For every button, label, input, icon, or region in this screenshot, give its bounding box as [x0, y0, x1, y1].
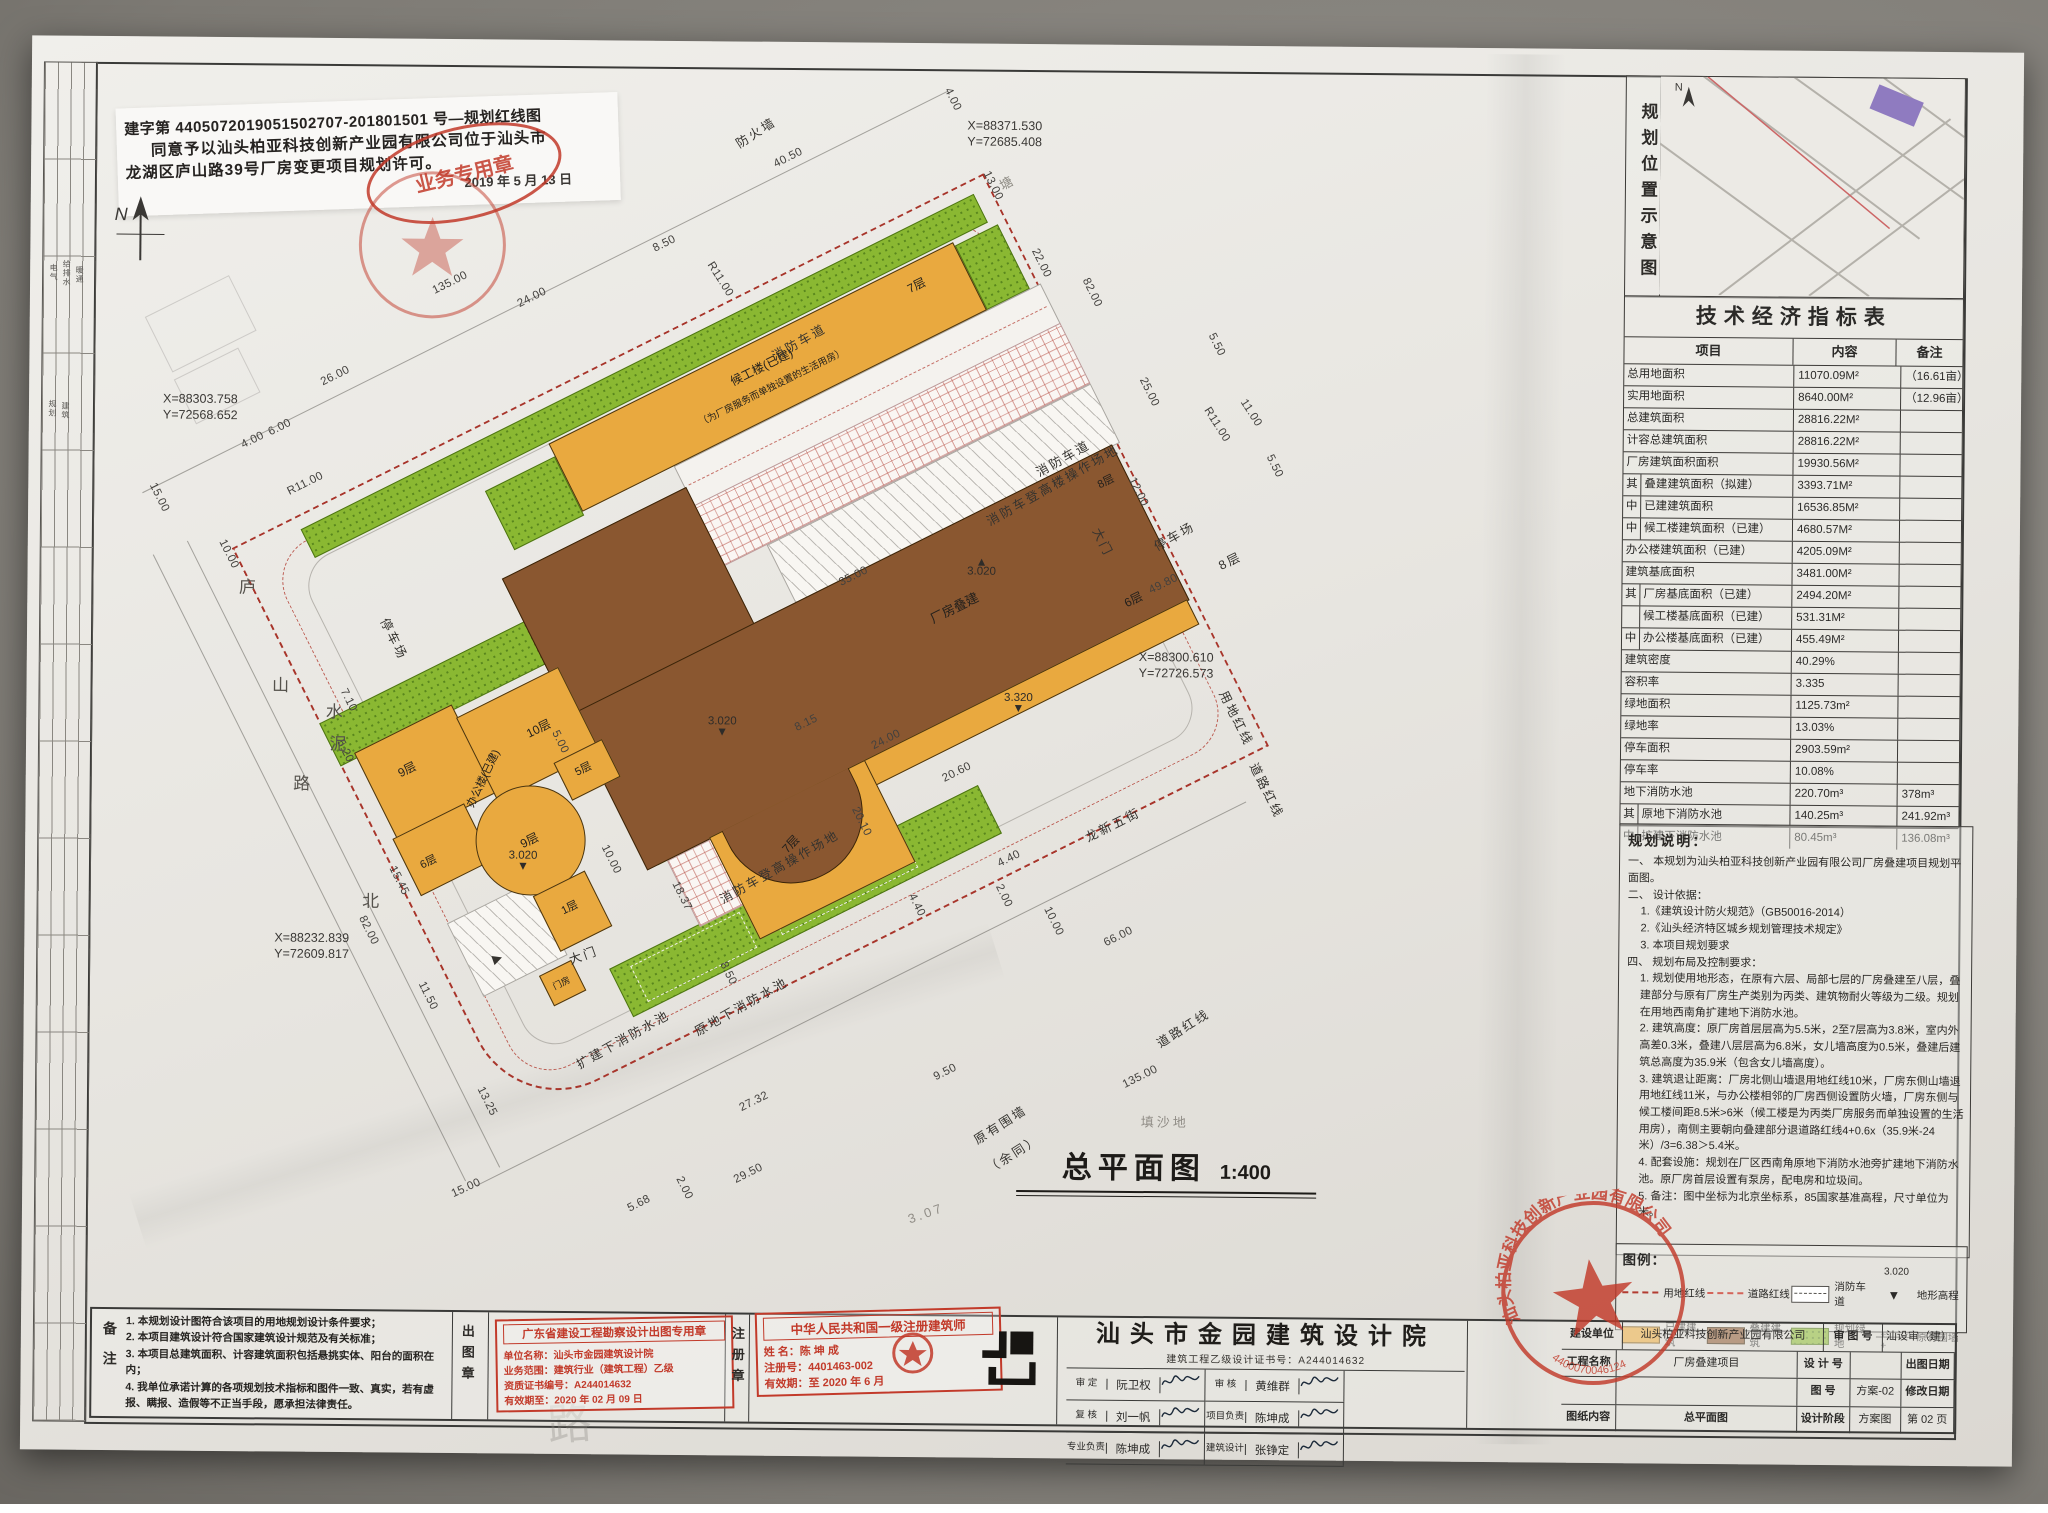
- legend-item: 道路红线: [1707, 1278, 1792, 1309]
- table-row: 建筑密度40.29%: [1622, 649, 1960, 674]
- row-label: 办公楼基底面积（已建）: [1640, 628, 1791, 650]
- divider: [1466, 1321, 1468, 1428]
- table-row: 建筑基底面积3481.00M²: [1622, 561, 1960, 586]
- elevation-triangle-icon: ▼: [509, 862, 538, 870]
- coord-y: Y=72609.817: [274, 946, 349, 963]
- row-group-prefix: 中: [1622, 628, 1640, 649]
- signature-ink: [1299, 1370, 1344, 1401]
- architect-seal-icon: [891, 1331, 935, 1375]
- row-value: 220.70m³: [1790, 784, 1897, 806]
- row-value: 4205.09M²: [1792, 542, 1899, 564]
- row-label: 候工楼基底面积（已建）: [1640, 606, 1791, 628]
- row-label: 停车面积: [1621, 738, 1790, 760]
- chutu-stamp-lines: 单位名称：汕头市金园建筑设计院业务范围：建筑行业（建筑工程）乙级资质证书编号：A…: [503, 1344, 726, 1408]
- row-value: 8640.00M²: [1793, 388, 1900, 410]
- row-value: 455.49M²: [1791, 630, 1898, 652]
- row-note: [1897, 697, 1959, 719]
- shen-value: 汕设审（建）: [1882, 1325, 1955, 1352]
- content-label: 图纸内容: [1561, 1404, 1615, 1431]
- table-row: 其叠建建筑面积（拟建）3393.71M²: [1623, 473, 1961, 498]
- row-note: [1899, 477, 1961, 499]
- coord-y: Y=72568.652: [163, 407, 238, 424]
- row-group-prefix: 中: [1623, 518, 1641, 539]
- signature-ink: [1160, 1433, 1205, 1464]
- row-group-prefix: 中: [1623, 496, 1641, 517]
- table-row: 中办公楼基底面积（已建）455.49M²: [1622, 627, 1960, 652]
- table-row: 其厂房基底面积（已建）2494.20M²: [1622, 583, 1960, 608]
- signature-cell: 建筑设计张铮定: [1205, 1434, 1344, 1467]
- signature-role: 审 定: [1066, 1379, 1107, 1390]
- north-arrow-icon: N: [96, 190, 173, 271]
- plan-label: 庐: [239, 573, 256, 598]
- eco-table-title: 技术经济指标表: [1625, 296, 1963, 340]
- legend-label: 消防车道: [1834, 1279, 1876, 1309]
- signature-name: 阮卫权: [1107, 1376, 1160, 1392]
- row-group-prefix: 其: [1622, 584, 1640, 605]
- elevation-triangle-icon: ▲: [967, 557, 996, 565]
- rev-label: 修改日期: [1900, 1380, 1953, 1407]
- row-label: 实用地面积: [1624, 386, 1793, 408]
- signature-cell: 审 定阮卫权: [1066, 1368, 1205, 1401]
- row-label: 候工楼建筑面积（已建）: [1641, 518, 1792, 540]
- coord-x: X=88300.610: [1139, 649, 1214, 666]
- eco-table-header: 项目 内容 备注: [1624, 337, 1962, 366]
- plan-title-text: 总平面图: [1062, 1142, 1206, 1187]
- zhuce-stamp-title: 中华人民共和国一级注册建筑师: [763, 1312, 994, 1341]
- coordinate-callout: X=88371.530Y=72685.408: [967, 117, 1042, 150]
- row-value: 16536.85M²: [1792, 498, 1899, 520]
- table-row: 中已建建筑面积16536.85M²: [1623, 495, 1961, 520]
- table-row: 绿地面积1125.73m²: [1621, 693, 1959, 718]
- left-strip-label: 暖通: [74, 266, 85, 284]
- plan-label: 山: [272, 671, 289, 696]
- planning-notes-title: 规划说明：: [1628, 830, 1966, 854]
- signature-cell: 审 核黄维群: [1205, 1370, 1344, 1403]
- row-note: [1900, 411, 1962, 433]
- eco-indicator-table: 技术经济指标表 项目 内容 备注 总用地面积11070.09M²（16.61亩）…: [1619, 295, 1964, 828]
- divider: [487, 1312, 489, 1419]
- rev-value: [1953, 1380, 1954, 1407]
- building-label: 7层: [904, 273, 928, 297]
- row-note: [1898, 609, 1960, 631]
- plan-label: 填沙地: [1141, 1112, 1189, 1131]
- building-label: 5层: [572, 758, 594, 780]
- signature-name: 刘一帆: [1107, 1408, 1160, 1424]
- row-value: 4680.57M²: [1792, 520, 1899, 542]
- remarks-side-label: 备注: [99, 1321, 120, 1381]
- header-item: 项目: [1624, 337, 1792, 364]
- note-line: 一、 本规划为汕头柏亚科技创新产业园有限公司厂房叠建项目规划平面图。: [1628, 854, 1966, 890]
- elev-symbol-icon: ▼: [1876, 1287, 1912, 1302]
- table-row: 停车面积2903.59m²: [1621, 737, 1959, 762]
- chutu-stamp: 广东省建设工程勘察设计出图专用章 单位名称：汕头市金园建筑设计院业务范围：建筑行…: [495, 1315, 735, 1412]
- building-label: 8层: [1094, 470, 1116, 492]
- building-label: 9层: [517, 828, 541, 852]
- coordinate-callout: X=88303.758Y=72568.652: [163, 390, 238, 423]
- date-label: 出图日期: [1900, 1352, 1953, 1379]
- key-map-title: 规划位置示意图: [1625, 76, 1662, 296]
- row-note: [1899, 499, 1961, 521]
- row-label: 地下消防水池: [1621, 782, 1790, 804]
- row-group-prefix: 其: [1620, 804, 1638, 825]
- legend-elevation-value: 3.020: [1884, 1267, 1909, 1278]
- signature-name: 黄维群: [1246, 1377, 1299, 1393]
- round-seal-stamp: [352, 164, 513, 325]
- stage-label: 设计阶段: [1796, 1406, 1849, 1433]
- remark-line: 3. 本项目总建筑面积、计容建筑面积包括悬挑实体、阳台的面积在内；: [125, 1346, 447, 1382]
- table-row: 绿地率13.03%: [1621, 715, 1959, 740]
- svg-text:N: N: [1675, 82, 1683, 94]
- plan-label: 水: [326, 697, 343, 722]
- divider: [1056, 1317, 1058, 1424]
- row-value: 13.03%: [1790, 718, 1897, 740]
- row-label: 停车率: [1621, 760, 1790, 782]
- row-value: 19930.56M²: [1792, 454, 1899, 476]
- row-value: 3393.71M²: [1792, 476, 1899, 498]
- row-note: [1898, 675, 1960, 697]
- chutu-line: 有效期至：2020 年 02 月 09 日: [504, 1389, 726, 1408]
- row-value: 28816.22M²: [1793, 432, 1900, 454]
- row-value: 3.335: [1791, 674, 1898, 696]
- row-note: （16.61亩）: [1900, 367, 1962, 389]
- left-strip-label: 规划: [47, 399, 58, 417]
- row-label: 建筑基底面积: [1622, 562, 1791, 584]
- building-label: 10层: [523, 715, 553, 742]
- page-value: 第 02 页: [1900, 1407, 1953, 1434]
- design-no-value: [1849, 1352, 1901, 1379]
- row-label: 绿地面积: [1621, 694, 1790, 716]
- signature-name: 张铮定: [1246, 1441, 1299, 1457]
- table-row: 办公楼建筑面积（已建）4205.09M²: [1623, 539, 1961, 564]
- signature-ink: [1160, 1401, 1205, 1432]
- signature-cell: 复 核刘一帆: [1066, 1400, 1205, 1433]
- row-label: 办公楼建筑面积（已建）: [1623, 540, 1792, 562]
- coord-y: Y=72726.573: [1139, 665, 1214, 682]
- row-note: [1898, 653, 1960, 675]
- signature-cell: 专业负责陈坤成: [1066, 1432, 1205, 1465]
- signature-name: 陈坤成: [1246, 1409, 1299, 1425]
- row-label: 叠建建筑面积（拟建）: [1641, 474, 1792, 496]
- row-value: 40.29%: [1791, 652, 1898, 674]
- building-label: 6层: [417, 850, 439, 872]
- row-label: 容积率: [1622, 672, 1791, 694]
- row-label: 厂房基底面积（已建）: [1640, 584, 1791, 606]
- row-note: [1897, 719, 1959, 741]
- chutu-stamp-title: 广东省建设工程勘察设计出图专用章: [503, 1321, 725, 1345]
- table-row: 停车率10.08%: [1621, 759, 1959, 784]
- note-line: 3. 建筑退让距离：厂房北侧山墙退用地红线10米，厂房东侧山墙退用地红线11米，…: [1626, 1071, 1965, 1158]
- institute-block: 汕头市金园建筑设计院 建筑工程乙级设计证书号：A244014632 审 定阮卫权…: [1066, 1319, 1465, 1467]
- plan-label: 路: [293, 769, 310, 794]
- fig-value: 方案-02: [1849, 1379, 1901, 1406]
- pages-value: 共 11 页: [1953, 1408, 1954, 1435]
- row-value: 2494.20M²: [1791, 586, 1898, 608]
- row-note: [1898, 587, 1960, 609]
- info-row: 图纸内容 总平面图 设计阶段 方案图 第 02 页 共 11 页: [1561, 1403, 1954, 1434]
- redline2-symbol-icon: [1707, 1285, 1743, 1300]
- building-label: 厂房叠建: [926, 587, 981, 627]
- signature-ink: [1160, 1369, 1205, 1400]
- row-value: 3481.00M²: [1791, 564, 1898, 586]
- row-group-prefix: [1622, 606, 1640, 627]
- row-label: 厂房建筑面积面积: [1623, 452, 1792, 474]
- row-label: 总用地面积: [1624, 364, 1793, 386]
- table-row: 地下消防水池220.70m³378m³: [1621, 781, 1959, 806]
- eco-table-rows: 总用地面积11070.09M²（16.61亩）实用地面积8640.00M²（12…: [1620, 363, 1962, 850]
- row-note: [1900, 433, 1962, 455]
- location-key-map: 规划位置示意图 N: [1624, 75, 1966, 300]
- elevation-markers: ▲3.0203.020▼3.020▼3.320▼: [7, 0, 2048, 9]
- divider: [451, 1312, 453, 1419]
- row-label: 建筑密度: [1622, 650, 1791, 672]
- signature-role: 项目负责: [1205, 1412, 1246, 1423]
- plan-label: 北: [362, 887, 379, 912]
- table-row: 总建筑面积28816.22M²: [1624, 407, 1962, 432]
- stage-value: 方案图: [1849, 1407, 1901, 1434]
- key-map-drawing: N: [1659, 77, 1965, 298]
- left-strip-label: 给排水: [61, 260, 72, 287]
- building-label: 9层: [395, 757, 419, 781]
- signature-grid: 审 定阮卫权审 核黄维群复 核刘一帆项目负责陈坤成专业负责陈坤成建筑设计张铮定: [1066, 1367, 1465, 1467]
- building-label: 门房: [550, 973, 572, 993]
- signature-ink: [1299, 1402, 1344, 1433]
- note-line: 1. 规划使用地形态，在原有六层、局部七层的厂房叠建至八层，叠建部分与原有厂房生…: [1627, 971, 1965, 1024]
- signature-role: 专业负责: [1066, 1443, 1107, 1454]
- plan-annotations: 4.0040.5013.008.5024.00135.0026.00R11.00…: [7, 0, 2048, 9]
- planning-notes-list: 一、 本规划为汕头柏亚科技创新产业园有限公司厂房叠建项目规划平面图。二、 设计依…: [1625, 854, 1966, 1225]
- chutu-side-label: 出图章: [457, 1324, 477, 1387]
- zhuce-stamp-lines: 姓 名：陈 坤 成注册号：4401463-002有效期：至 2020 年 6 月: [764, 1338, 995, 1392]
- table-row: 实用地面积8640.00M²（12.96亩）: [1624, 385, 1962, 410]
- table-row: 厂房建筑面积面积19930.56M²: [1623, 451, 1961, 476]
- plan-label: 泥: [329, 729, 346, 754]
- row-note: [1899, 543, 1961, 565]
- elevation-marker: 3.020▼: [509, 850, 538, 870]
- building-label: 办公楼(已建): [462, 747, 503, 810]
- institute-name: 汕头市金园建筑设计院: [1067, 1319, 1465, 1352]
- date-value: 2019-03: [1954, 1353, 1955, 1380]
- design-no-label: 设 计 号: [1796, 1351, 1849, 1378]
- row-group-prefix: 其: [1623, 474, 1641, 495]
- signature-role: 复 核: [1066, 1411, 1107, 1422]
- left-strip-label: 建筑: [60, 402, 71, 420]
- zhuce-stamp: 中华人民共和国一级注册建筑师 姓 名：陈 坤 成注册号：4401463-002有…: [755, 1307, 1003, 1397]
- left-strip-label: 电气: [48, 263, 59, 281]
- legend-item: 消防车道: [1791, 1279, 1876, 1310]
- signature-cell: 项目负责陈坤成: [1205, 1402, 1344, 1435]
- row-note: [1898, 565, 1960, 587]
- coord-x: X=88371.530: [967, 117, 1042, 134]
- table-row: 容积率3.335: [1622, 671, 1960, 696]
- table-row: 候工楼基底面积（已建）531.31M²: [1622, 605, 1960, 630]
- row-value: 11070.09M²: [1793, 366, 1900, 388]
- drawing-sheet: 建字第 4405072019051502707-201801501 号—规划红线…: [0, 0, 2048, 1513]
- row-value: 1125.73m²: [1790, 696, 1897, 718]
- elevation-marker: ▲3.020: [967, 557, 996, 577]
- coord-x: X=88232.839: [274, 929, 349, 946]
- row-value: 10.08%: [1790, 762, 1897, 784]
- table-row: 总用地面积11070.09M²（16.61亩）: [1624, 363, 1962, 388]
- header-note: 备注: [1895, 340, 1962, 367]
- elevation-triangle-icon: ▼: [1004, 704, 1033, 712]
- coordinate-callout: X=88300.610Y=72726.573: [1139, 649, 1214, 682]
- row-note: [1898, 631, 1960, 653]
- legend-item: 3.020▼地形高程: [1876, 1279, 1961, 1310]
- coordinate-callouts: X=88371.530Y=72685.408X=88303.758Y=72568…: [7, 0, 2048, 9]
- institute-logo-icon: [979, 1329, 1035, 1385]
- fig-label: 图 号: [1796, 1379, 1849, 1406]
- lane-symbol-icon: [1791, 1285, 1829, 1302]
- note-line: 2. 建筑高度：原厂房首层层高为5.5米，2至7层高为3.8米，室内外高差0.3…: [1626, 1021, 1964, 1074]
- company-round-stamp: 汕头柏亚科技创新产业园有限公司 4400070046124: [1481, 1181, 1705, 1405]
- content-value: 总平面图: [1615, 1405, 1796, 1433]
- signature-name: 陈坤成: [1107, 1440, 1160, 1456]
- row-note: [1899, 455, 1961, 477]
- building-label: 1层: [558, 896, 580, 918]
- elevation-marker: 3.320▼: [1004, 692, 1033, 712]
- divider: [748, 1315, 750, 1422]
- building-label: 6层: [1121, 587, 1145, 611]
- elevation-value: 3.020: [967, 565, 996, 577]
- elevation-triangle-icon: ▼: [708, 727, 737, 735]
- remarks-list: 1. 本规划设计图符合该项目的用地规划设计条件要求；2. 本项目建筑设计符合国家…: [125, 1313, 448, 1414]
- remark-line: 4. 我单位承诺计算的各项规划技术指标和图件一致、真实，若有虚报、瞒报、造假等不…: [125, 1379, 447, 1415]
- row-value: 28816.22M²: [1793, 410, 1900, 432]
- plan-title: 总平面图1:400: [1016, 1142, 1316, 1199]
- signature-ink: [1299, 1434, 1344, 1465]
- plan-scale: 1:400: [1220, 1162, 1271, 1185]
- table-row: 计容总建筑面积28816.22M²: [1624, 429, 1962, 454]
- signature-role: 建筑设计: [1205, 1444, 1246, 1455]
- row-note: 378m³: [1897, 785, 1959, 807]
- elevation-marker: 3.020▼: [708, 715, 737, 735]
- legend-label: 道路红线: [1748, 1286, 1790, 1301]
- row-value: 531.31M²: [1791, 608, 1898, 630]
- north-label: N: [115, 204, 129, 224]
- row-note: [1897, 763, 1959, 785]
- row-label: 计容总建筑面积: [1624, 430, 1793, 452]
- zhuce-side-label: 注册章: [727, 1326, 747, 1389]
- table-row: 中候工楼建筑面积（已建）4680.57M²: [1623, 517, 1961, 542]
- coord-y: Y=72685.408: [967, 134, 1042, 151]
- legend-label: 地形高程: [1917, 1287, 1959, 1302]
- row-label: 已建建筑面积: [1641, 496, 1792, 518]
- photo-background: 建字第 4405072019051502707-201801501 号—规划红线…: [0, 0, 2048, 1504]
- signature-role: 审 核: [1205, 1380, 1246, 1391]
- row-value: 2903.59m²: [1790, 740, 1897, 762]
- row-label: 总建筑面积: [1624, 408, 1793, 430]
- row-label: 绿地率: [1621, 716, 1790, 738]
- coord-x: X=88303.758: [163, 390, 238, 407]
- coordinate-callout: X=88232.839Y=72609.817: [274, 929, 349, 962]
- header-content: 内容: [1792, 339, 1895, 366]
- row-note: [1897, 741, 1959, 763]
- row-note: （12.96亩）: [1900, 389, 1962, 411]
- row-note: [1899, 521, 1961, 543]
- shen-label: 审 图 号: [1823, 1324, 1882, 1351]
